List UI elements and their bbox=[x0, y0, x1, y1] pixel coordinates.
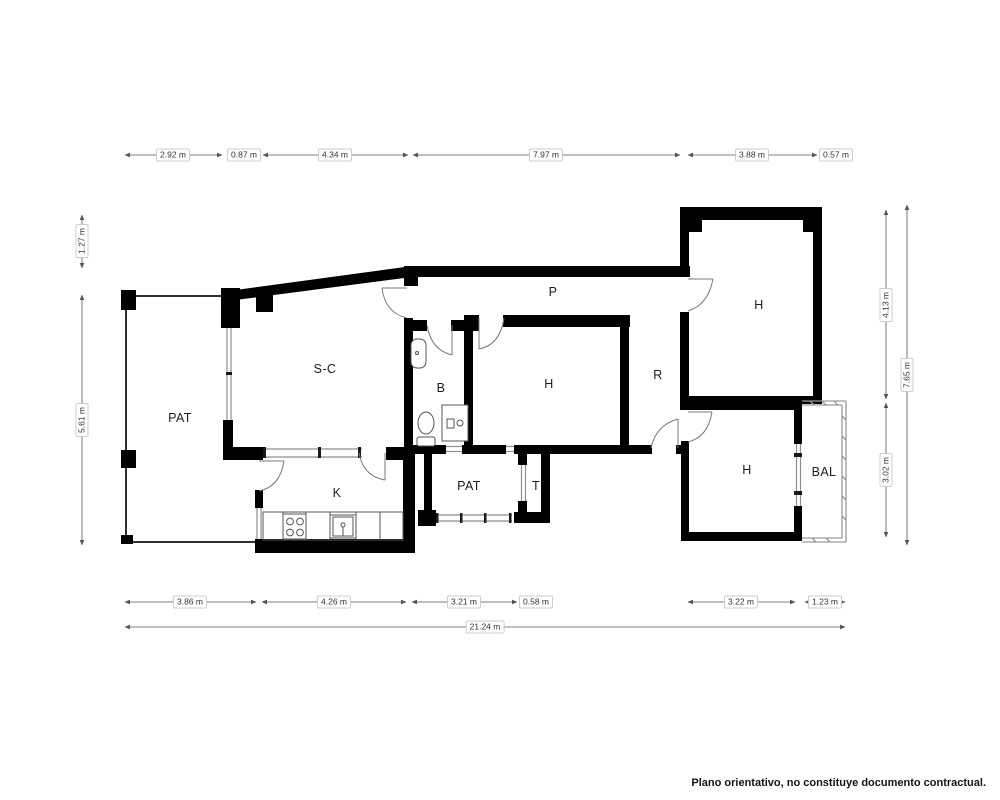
washing-machine-icon bbox=[442, 405, 468, 441]
disclaimer-text: Plano orientativo, no constituye documen… bbox=[691, 777, 986, 789]
room-label-h-bot: H bbox=[742, 463, 751, 477]
floorplan-canvas: PAT S-C K B H P R H H BAL PAT T 2.92 m 0… bbox=[0, 0, 1000, 800]
window-icon bbox=[506, 447, 514, 452]
room-label-r: R bbox=[653, 368, 662, 382]
dim-label-top-1: 2.92 m bbox=[156, 149, 190, 162]
washbasin-icon bbox=[411, 339, 426, 368]
room-label-h-top: H bbox=[754, 298, 763, 312]
door-arc-icon bbox=[359, 453, 385, 480]
dimension-lines bbox=[82, 155, 907, 627]
stove-icon bbox=[283, 514, 306, 539]
window-icon bbox=[226, 328, 232, 420]
door-arc-icon bbox=[651, 419, 678, 448]
dim-label-right-2: 3.02 m bbox=[880, 453, 893, 487]
door-arc-icon bbox=[259, 461, 284, 491]
floorplan-drawing bbox=[0, 0, 1000, 800]
dim-label-total: 21.24 m bbox=[466, 621, 505, 634]
room-label-h-mid: H bbox=[544, 377, 553, 391]
door-arc-icon bbox=[479, 318, 504, 349]
door-arc-icon bbox=[688, 412, 712, 442]
dim-label-top-2: 0.87 m bbox=[227, 149, 261, 162]
toilet-icon bbox=[417, 412, 435, 446]
room-label-sc: S-C bbox=[314, 362, 337, 376]
door-arc-icon bbox=[688, 279, 713, 311]
window-icon bbox=[257, 508, 261, 539]
dim-label-bottom-2: 4.26 m bbox=[317, 596, 351, 609]
door-arc-icon bbox=[382, 288, 407, 318]
window-icon bbox=[794, 444, 802, 506]
dim-label-bottom-4: 0.58 m bbox=[519, 596, 553, 609]
dim-label-bottom-6: 1.23 m bbox=[808, 596, 842, 609]
window-icon bbox=[446, 447, 462, 452]
room-label-k: K bbox=[333, 486, 342, 500]
window-icon bbox=[522, 465, 526, 501]
walls bbox=[221, 207, 822, 553]
dim-label-right-1: 4.13 m bbox=[880, 288, 893, 322]
window-icon bbox=[263, 447, 362, 458]
dim-label-bottom-5: 3.22 m bbox=[724, 596, 758, 609]
dim-label-top-4: 7.97 m bbox=[529, 149, 563, 162]
kitchen-sink-icon bbox=[330, 515, 356, 538]
dim-label-right-3: 7.65 m bbox=[901, 358, 914, 392]
dim-label-top-6: 0.57 m bbox=[819, 149, 853, 162]
dim-label-left-1: 1.27 m bbox=[76, 224, 89, 258]
room-label-b: B bbox=[437, 381, 446, 395]
room-label-pat-left: PAT bbox=[168, 411, 192, 425]
dim-label-top-3: 4.34 m bbox=[318, 149, 352, 162]
door-arc-icon bbox=[427, 325, 452, 355]
dim-label-top-5: 3.88 m bbox=[735, 149, 769, 162]
room-label-p: P bbox=[549, 285, 558, 299]
room-label-bal: BAL bbox=[812, 465, 837, 479]
window-icon bbox=[436, 513, 512, 523]
dim-label-bottom-1: 3.86 m bbox=[173, 596, 207, 609]
dim-label-bottom-3: 3.21 m bbox=[447, 596, 481, 609]
dim-label-left-2: 5.61 m bbox=[76, 403, 89, 437]
room-label-t: T bbox=[532, 479, 540, 493]
room-label-pat-mid: PAT bbox=[457, 479, 481, 493]
